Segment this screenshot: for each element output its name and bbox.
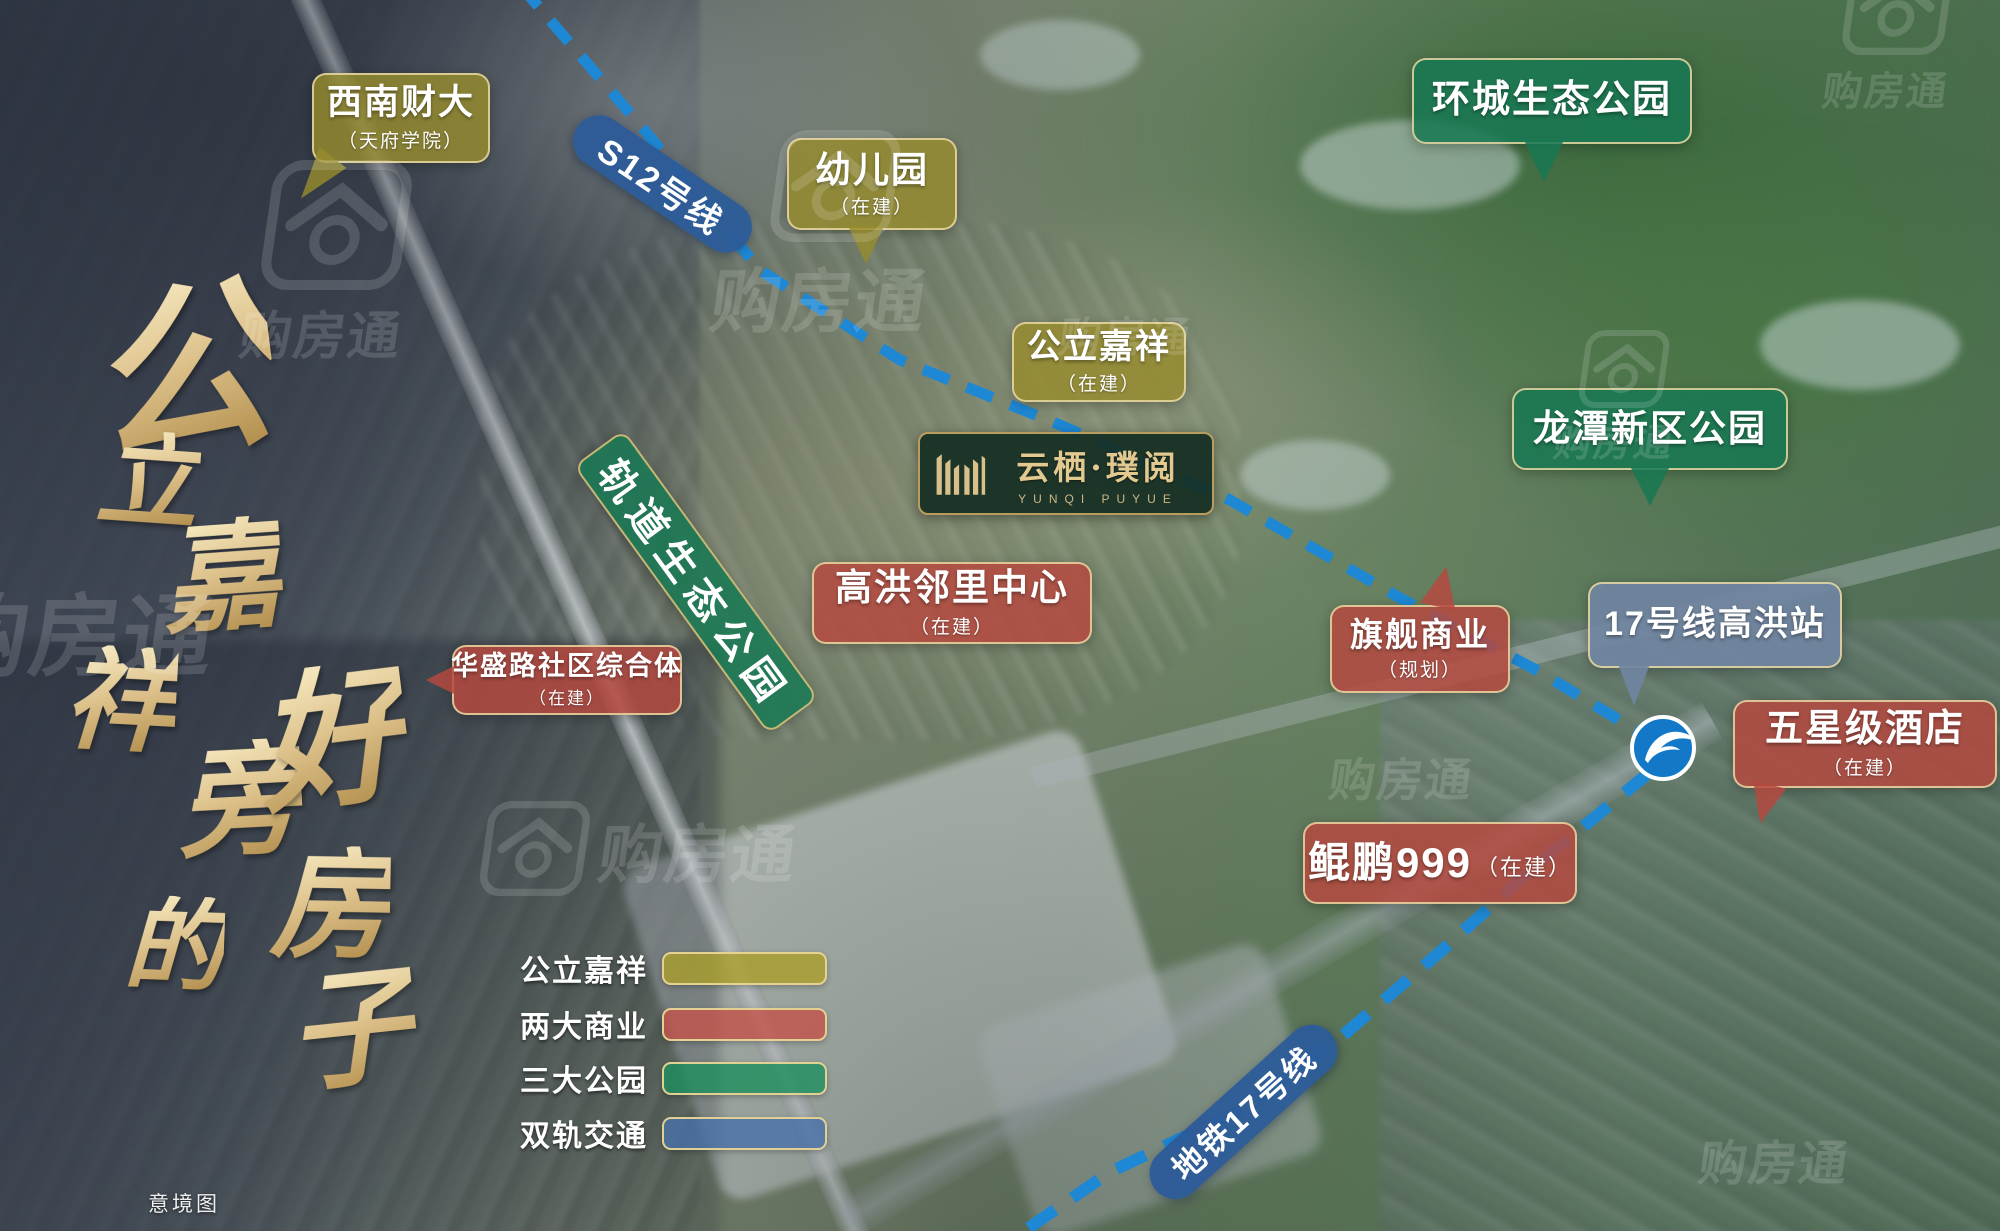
legend-label: 三大公园 <box>520 1056 648 1100</box>
callout-hotel-label: 五星级酒店 <box>1765 708 1965 752</box>
callout-xinancaida: 西南财大 （天府学院） <box>312 73 490 163</box>
legend-row: 三大公园 <box>520 1056 827 1100</box>
callout-longtan-park-pointer <box>1630 466 1670 506</box>
callout-gonglijiaxiang-label: 公立嘉祥 <box>1027 328 1171 367</box>
callout-gonglijiaxiang: 公立嘉祥 （在建） <box>1012 322 1186 402</box>
project-logo-names: 云栖·璞阅 YUNQI PUYUE <box>998 441 1198 506</box>
callout-youeryuan-sub: （在建） <box>830 192 914 219</box>
callout-qijian-shangye: 旗舰商业 （规划） <box>1330 605 1510 693</box>
callout-kunpeng-sub: （在建） <box>1476 850 1572 882</box>
callout-station17-label: 17号线高洪站 <box>1604 605 1826 644</box>
callout-huancheng-park-label: 环城生态公园 <box>1432 79 1672 123</box>
legend-label: 公立嘉祥 <box>520 946 648 990</box>
metro-station-icon <box>1632 717 1694 779</box>
callout-youeryuan-label: 幼儿园 <box>815 149 929 190</box>
callout-gaohong-center-label: 高洪邻里中心 <box>835 567 1069 610</box>
legend-swatch-parks <box>662 1062 827 1095</box>
headline-char: 嘉 <box>158 514 286 642</box>
callout-xinancaida-label: 西南财大 <box>327 83 475 123</box>
headline-char: 子 <box>282 960 423 1101</box>
callout-kunpeng-label: 鲲鹏999 <box>1308 839 1472 887</box>
headline-char: 的 <box>122 894 225 997</box>
legend-swatch-school <box>662 952 827 985</box>
aerial-map-poster: S12号线 地铁17号线 西南财大 （天府学院） 幼儿园 （在建） 公立嘉祥 （… <box>0 0 2000 1231</box>
callout-qijian-shangye-sub: （规划） <box>1378 655 1462 682</box>
legend-row: 双轨交通 <box>520 1111 827 1155</box>
callout-station17-pointer <box>1618 664 1650 706</box>
legend-label: 双轨交通 <box>520 1111 648 1155</box>
headline-char: 祥 <box>61 643 179 761</box>
callout-kunpeng: 鲲鹏999 （在建） <box>1303 822 1577 904</box>
legend-swatch-commerce <box>662 1008 827 1041</box>
callout-longtan-park: 龙潭新区公园 <box>1512 388 1788 470</box>
callout-gaohong-center: 高洪邻里中心 （在建） <box>812 562 1092 644</box>
legend-row: 两大商业 <box>520 1002 827 1046</box>
project-logo-plate: 云栖·璞阅 YUNQI PUYUE <box>918 432 1214 515</box>
callout-huancheng-park: 环城生态公园 <box>1412 58 1692 144</box>
callout-youeryuan: 幼儿园 （在建） <box>787 138 957 230</box>
callout-xinancaida-sub: （天府学院） <box>338 126 464 153</box>
callout-hotel-sub: （在建） <box>1823 753 1907 780</box>
callout-youeryuan-pointer <box>848 226 884 264</box>
project-name-latin: YUNQI PUYUE <box>1018 492 1178 506</box>
legend-swatch-transit <box>662 1117 827 1150</box>
callout-huashenglu-pointer <box>426 666 454 694</box>
project-logo-mark-icon <box>934 447 986 501</box>
callout-hotel: 五星级酒店 （在建） <box>1733 700 1997 788</box>
callout-gonglijiaxiang-sub: （在建） <box>1057 369 1141 396</box>
callout-qijian-shangye-label: 旗舰商业 <box>1350 616 1490 654</box>
legend-label: 两大商业 <box>520 1002 648 1046</box>
callout-longtan-park-label: 龙潭新区公园 <box>1533 408 1767 451</box>
callout-gaohong-center-sub: （在建） <box>910 612 994 639</box>
project-name: 云栖·璞阅 <box>1016 441 1180 489</box>
headline-char: 好 <box>248 656 415 823</box>
callout-station17: 17号线高洪站 <box>1588 582 1842 668</box>
callout-huashenglu: 华盛路社区综合体 （在建） <box>452 645 682 715</box>
callout-huancheng-park-pointer <box>1524 140 1564 182</box>
callout-huashenglu-label: 华盛路社区综合体 <box>451 651 683 682</box>
callout-huashenglu-sub: （在建） <box>529 684 605 709</box>
legend-row: 公立嘉祥 <box>520 946 827 990</box>
headline-char: 房 <box>269 845 391 967</box>
footnote: 意境图 <box>148 1188 220 1218</box>
